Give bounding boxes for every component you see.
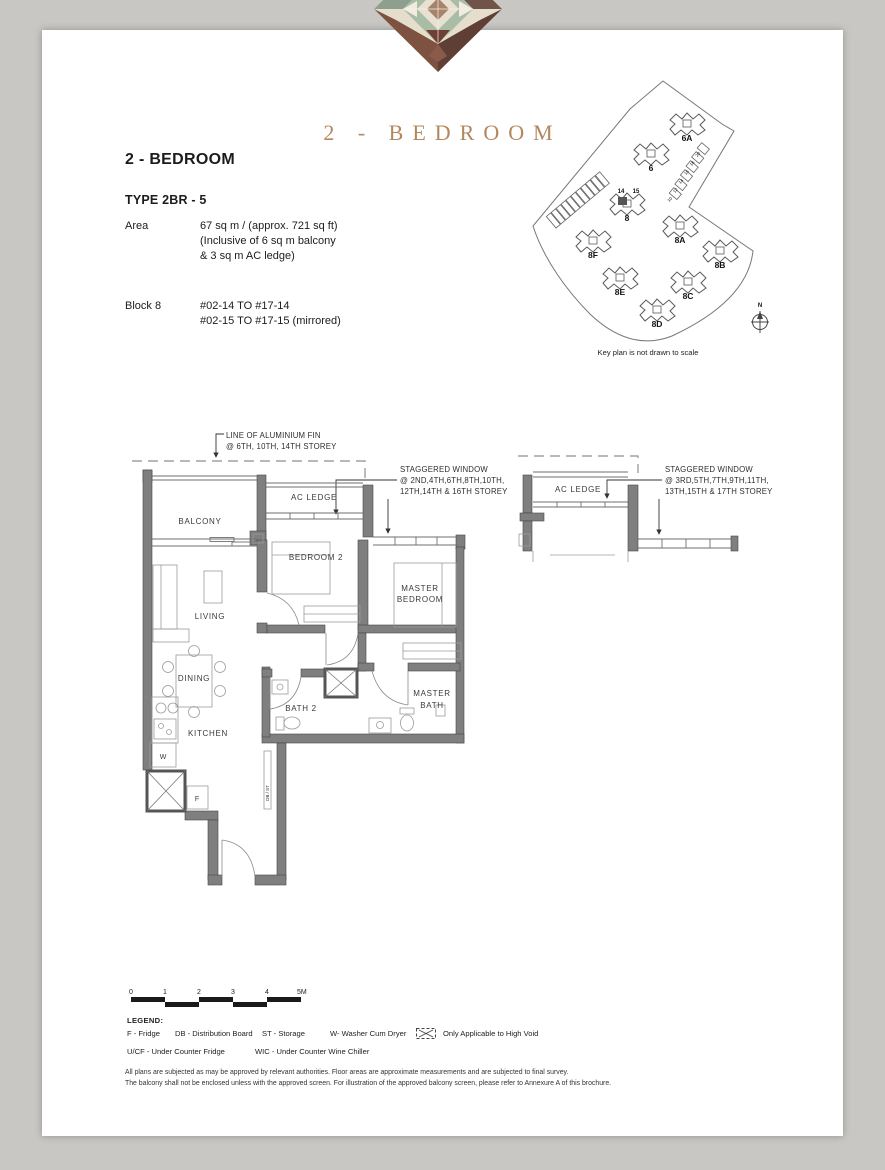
area-line-1: 67 sq m / (approx. 721 sq ft) bbox=[200, 219, 338, 234]
fin-note-line2: @ 6TH, 10TH, 14TH STOREY bbox=[226, 442, 337, 451]
disclaimer-line-1: All plans are subjected as may be approv… bbox=[125, 1068, 815, 1079]
legend-row-1: F - Fridge DB - Distribution Board ST - … bbox=[127, 1025, 807, 1043]
brand-diamond-logo bbox=[373, 0, 503, 74]
label-dining: DINING bbox=[178, 674, 210, 683]
label-bedroom2: BEDROOM 2 bbox=[289, 553, 343, 562]
legend-washer: W- Washer Cum Dryer bbox=[330, 1029, 406, 1038]
north-arrow-icon: N bbox=[751, 303, 769, 333]
brochure-page-background: { "header": { "series_title": "2 - BEDRO… bbox=[0, 0, 885, 1170]
keyplan-unit-15: 15 bbox=[633, 189, 640, 195]
unit-type: TYPE 2BR - 5 bbox=[125, 193, 455, 207]
legend-db: DB - Distribution Board bbox=[175, 1029, 253, 1038]
area-line-3: & 3 sq m AC ledge) bbox=[200, 249, 338, 264]
block-line-1: #02-14 TO #17-14 bbox=[200, 299, 341, 314]
staggered-a-line1: STAGGERED WINDOW bbox=[400, 465, 488, 474]
legend-row-2: U/CF - Under Counter Fridge WIC - Under … bbox=[127, 1043, 807, 1061]
keyplan-block-8D-icon bbox=[640, 299, 675, 321]
block-line-2: #02-15 TO #17-15 (mirrored) bbox=[200, 314, 341, 329]
staggered-b-line3: 13TH,15TH & 17TH STOREY bbox=[665, 487, 773, 496]
label-fridge: F bbox=[195, 796, 199, 803]
label-mbath-1: MASTER bbox=[413, 689, 451, 698]
keyplan-block-8-label: 8 bbox=[625, 213, 630, 223]
keyplan-caption: Key plan is not drawn to scale bbox=[598, 348, 699, 357]
keyplan-block-8C-icon bbox=[671, 271, 706, 293]
legend-fridge: F - Fridge bbox=[127, 1029, 160, 1038]
label-ac-ledge: AC LEDGE bbox=[291, 493, 337, 502]
label-mbath-2: BATH bbox=[420, 701, 444, 710]
staggered-a-line2: @ 2ND,4TH,6TH,8TH,10TH, bbox=[400, 476, 504, 485]
staggered-b-line1: STAGGERED WINDOW bbox=[665, 465, 753, 474]
keyplan-block-6A-label: 6A bbox=[682, 133, 693, 143]
room-labels: BALCONY AC LEDGE BEDROOM 2 MASTER BEDROO… bbox=[160, 493, 451, 803]
area-line-2: (Inclusive of 6 sq m balcony bbox=[200, 234, 338, 249]
disclaimer-line-2: The balcony shall not be enclosed unless… bbox=[125, 1079, 815, 1090]
keyplan-block-6-label: 6 bbox=[649, 163, 654, 173]
keyplan-block-8B-label: 8B bbox=[715, 260, 726, 270]
label-balcony: BALCONY bbox=[178, 517, 221, 526]
fin-note-line1: LINE OF ALUMINIUM FIN bbox=[226, 431, 321, 440]
keyplan-block-8B-icon bbox=[703, 240, 738, 262]
keyplan-block-8E-label: 8E bbox=[615, 287, 626, 297]
label-master-1: MASTER bbox=[401, 584, 439, 593]
edge-units: 101214161820 bbox=[665, 143, 710, 205]
label-washer: W bbox=[160, 754, 167, 761]
keyplan-block-8C-label: 8C bbox=[683, 291, 694, 301]
unit-info: 2 - BEDROOM TYPE 2BR - 5 Area 67 sq m / … bbox=[125, 151, 455, 329]
legend: LEGEND: F - Fridge DB - Distribution Boa… bbox=[127, 1016, 807, 1061]
scale-2: 2 bbox=[197, 989, 201, 996]
keyplan-block-8F-label: 8F bbox=[588, 250, 598, 260]
scale-bar: 0 1 2 3 4 5M bbox=[127, 986, 327, 1014]
keyplan-block-8E-icon bbox=[603, 267, 638, 289]
legend-wic: WIC - Under Counter Wine Chiller bbox=[255, 1047, 369, 1056]
scale-3: 3 bbox=[231, 989, 235, 996]
label-kitchen: KITCHEN bbox=[188, 729, 228, 738]
scale-4: 4 bbox=[265, 989, 269, 996]
label-living: LIVING bbox=[195, 612, 225, 621]
staggered-b-line2: @ 3RD,5TH,7TH,9TH,11TH, bbox=[665, 476, 769, 485]
legend-high-void: Only Applicable to High Void bbox=[443, 1029, 538, 1038]
block-label: Block 8 bbox=[125, 299, 200, 329]
floor-plan: LINE OF ALUMINIUM FIN @ 6TH, 10TH, 14TH … bbox=[120, 425, 792, 943]
keyplan-unit-14: 14 bbox=[618, 189, 625, 195]
high-void-icon bbox=[415, 1027, 437, 1042]
unit-heading: 2 - BEDROOM bbox=[125, 151, 455, 169]
block-row: Block 8 #02-14 TO #17-14 #02-15 TO #17-1… bbox=[125, 299, 455, 329]
keyplan-block-8F-icon bbox=[576, 230, 611, 252]
scale-0: 0 bbox=[129, 989, 133, 996]
legend-title: LEGEND: bbox=[127, 1016, 807, 1025]
scale-5m: 5M bbox=[297, 989, 307, 996]
staggered-a-line3: 12TH,14TH & 16TH STOREY bbox=[400, 487, 508, 496]
strata-row bbox=[546, 172, 609, 228]
label-ac-ledge-b: AC LEDGE bbox=[555, 485, 601, 494]
scale-1: 1 bbox=[163, 989, 167, 996]
keyplan-block-6-icon bbox=[634, 143, 669, 165]
aluminium-fin-dashed-line bbox=[132, 461, 365, 482]
block-value: #02-14 TO #17-14 #02-15 TO #17-15 (mirro… bbox=[200, 299, 341, 329]
key-plan: 101214161820 6A6141588A8F8B8E8C8D N Key … bbox=[530, 78, 782, 370]
area-label: Area bbox=[125, 219, 200, 264]
label-master-2: BEDROOM bbox=[397, 595, 443, 604]
area-value: 67 sq m / (approx. 721 sq ft) (Inclusive… bbox=[200, 219, 338, 264]
brochure-page: 2 - BEDROOM 2 - BEDROOM TYPE 2BR - 5 Are… bbox=[42, 30, 843, 1136]
keyplan-block-8A-icon bbox=[663, 215, 698, 237]
disclaimer: All plans are subjected as may be approv… bbox=[125, 1068, 815, 1089]
label-db-st: DB / ST bbox=[265, 785, 270, 801]
svg-text:10: 10 bbox=[666, 196, 673, 203]
keyplan-block-8D-label: 8D bbox=[652, 319, 663, 329]
legend-st: ST - Storage bbox=[262, 1029, 305, 1038]
fin-leader-arrow bbox=[216, 434, 224, 457]
label-bath2: BATH 2 bbox=[285, 704, 317, 713]
area-row: Area 67 sq m / (approx. 721 sq ft) (Incl… bbox=[125, 219, 455, 264]
legend-ucf: U/CF - Under Counter Fridge bbox=[127, 1047, 225, 1056]
keyplan-block-8A-label: 8A bbox=[675, 235, 686, 245]
keyplan-block-6A-icon bbox=[670, 113, 705, 135]
svg-text:N: N bbox=[758, 303, 762, 309]
keyplan-block-8-icon bbox=[610, 193, 645, 215]
